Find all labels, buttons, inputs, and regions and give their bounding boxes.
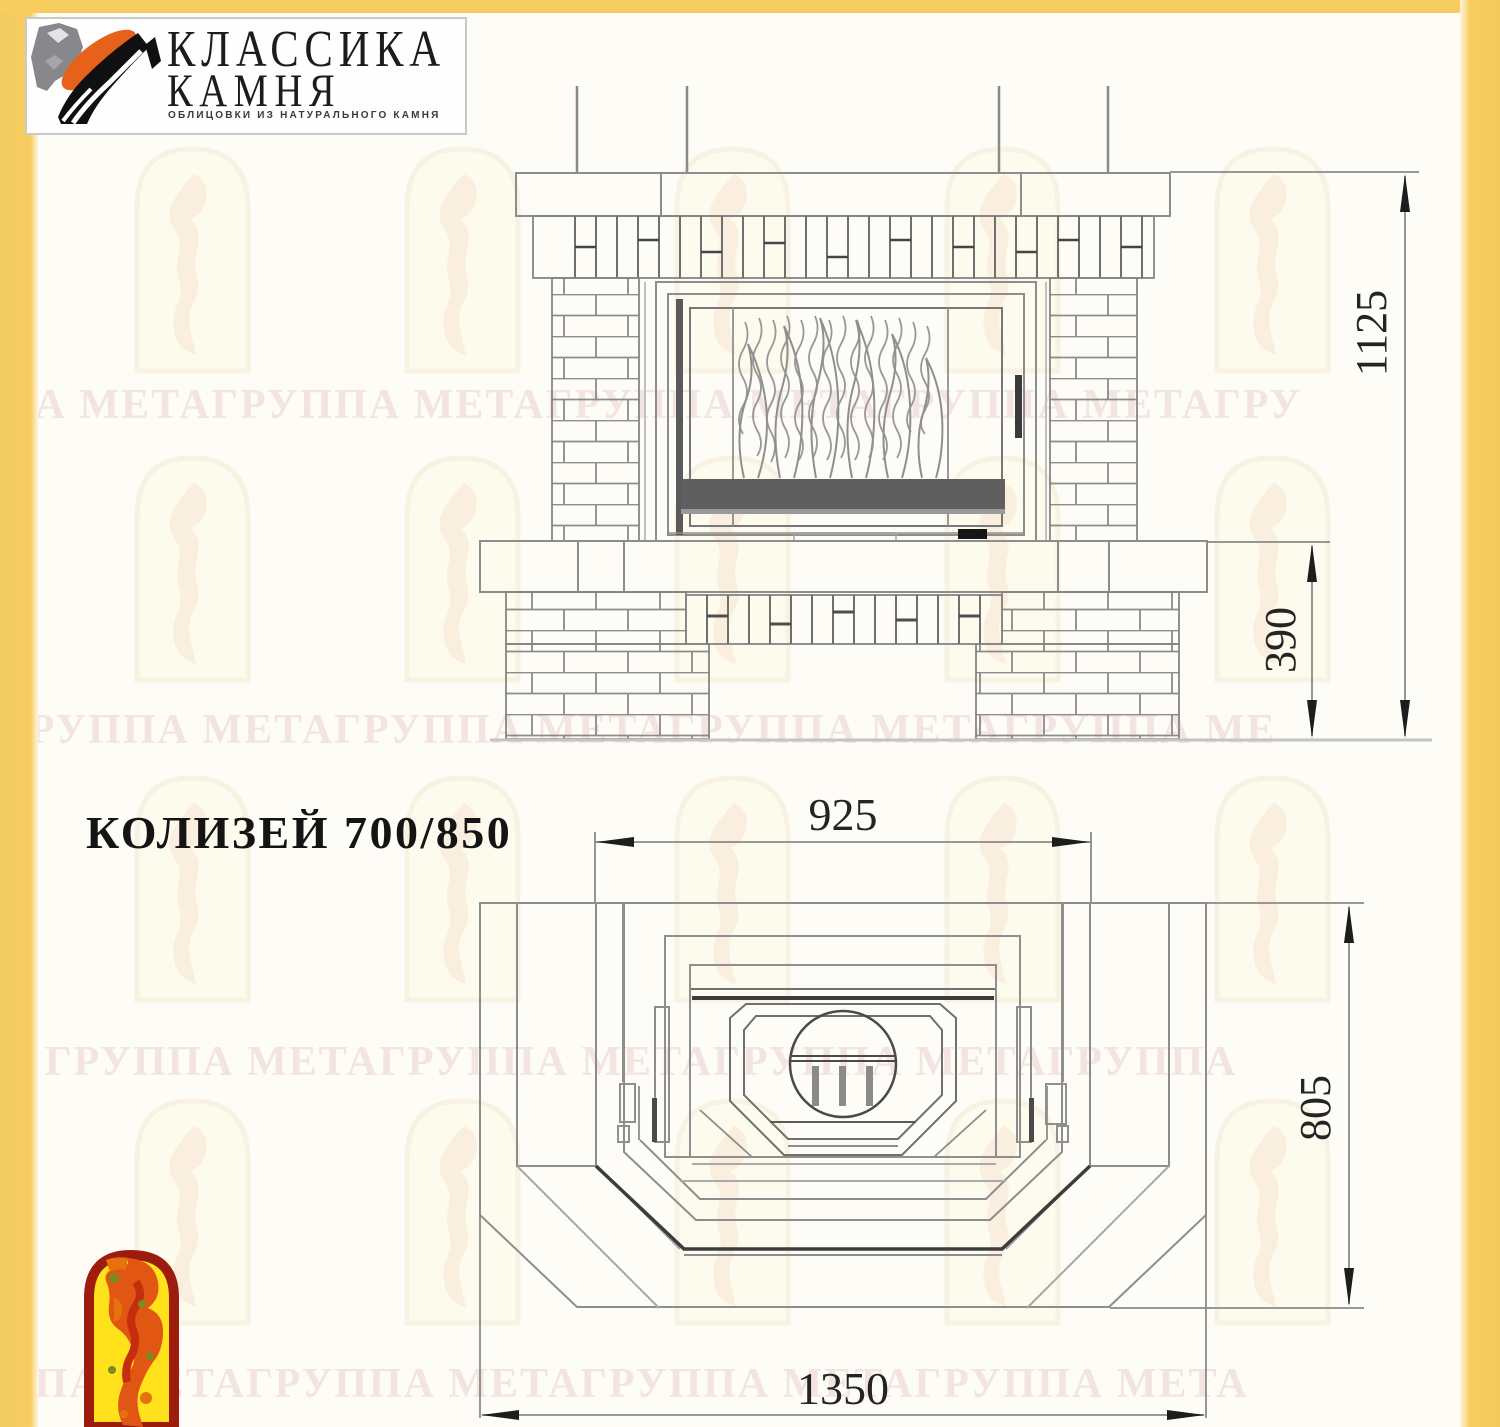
svg-text:805: 805 <box>1291 1075 1340 1141</box>
svg-text:1125: 1125 <box>1347 290 1396 376</box>
svg-text:925: 925 <box>809 789 878 840</box>
svg-text:1350: 1350 <box>797 1363 889 1414</box>
svg-text:390: 390 <box>1256 607 1305 673</box>
